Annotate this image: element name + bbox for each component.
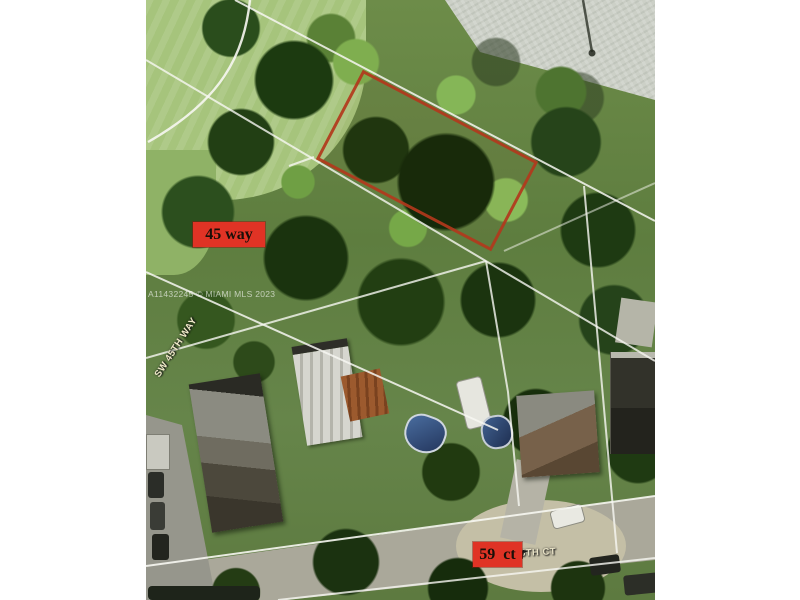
page: A11432245 © MIAMI MLS 2023 SW 45TH WAY 5… <box>0 0 800 600</box>
street-line-lower <box>278 558 655 600</box>
utility-pole <box>589 50 596 57</box>
tag-45-way: 45 way <box>193 222 265 247</box>
street-line-upper <box>146 496 655 566</box>
tag-59-ct: 59 ct <box>473 542 522 567</box>
lot-line-vertical-right <box>584 186 617 553</box>
aerial-photo: A11432245 © MIAMI MLS 2023 SW 45TH WAY 5… <box>146 0 655 600</box>
lot-line-road-edge <box>504 183 655 251</box>
lot-line-vertical-mid <box>486 261 519 506</box>
lot-line-spur <box>289 157 314 166</box>
mls-watermark: A11432245 © MIAMI MLS 2023 <box>148 289 275 299</box>
utility-pole-shadow <box>583 0 592 52</box>
